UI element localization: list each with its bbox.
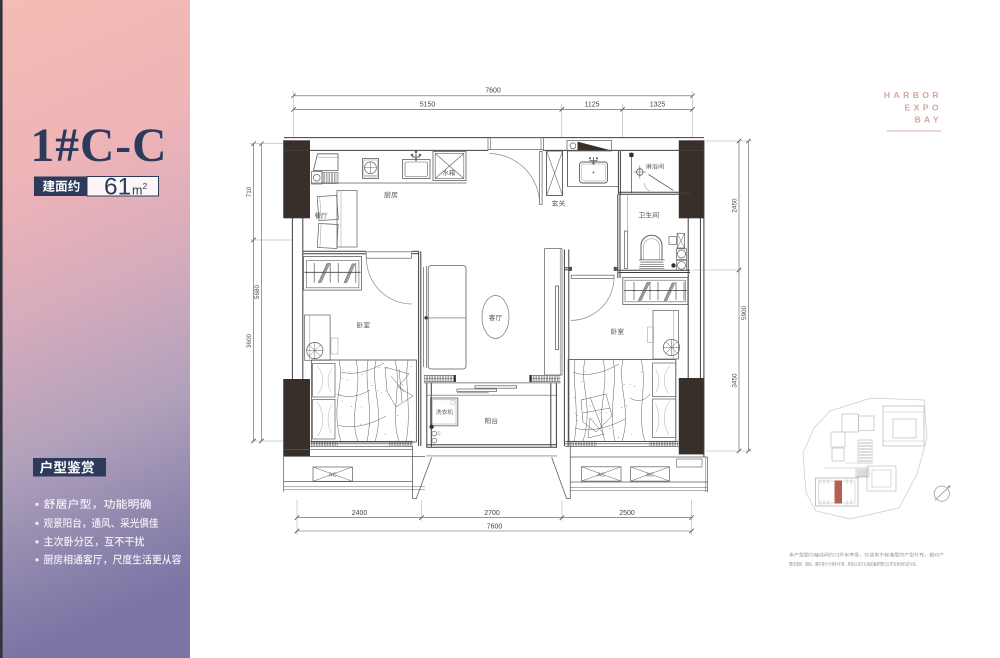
svg-text:5900: 5900 xyxy=(741,305,748,320)
svg-text:2450: 2450 xyxy=(731,198,738,213)
svg-text:710: 710 xyxy=(246,186,253,197)
svg-text:AC: AC xyxy=(597,472,605,478)
svg-text:1#C-C: 1#C-C xyxy=(31,120,168,172)
svg-text:7600: 7600 xyxy=(485,88,501,95)
svg-text:EXPO: EXPO xyxy=(905,103,942,113)
svg-text:2500: 2500 xyxy=(619,510,635,517)
svg-text:AC: AC xyxy=(646,472,654,478)
svg-text:1125: 1125 xyxy=(584,101,599,108)
svg-text:3450: 3450 xyxy=(731,373,738,388)
svg-text:3600: 3600 xyxy=(246,333,253,348)
svg-text:5680: 5680 xyxy=(254,284,261,299)
svg-text:5150: 5150 xyxy=(420,101,436,108)
svg-text:61: 61 xyxy=(104,174,131,201)
svg-text:7600: 7600 xyxy=(487,523,503,530)
svg-text:2400: 2400 xyxy=(352,510,368,517)
svg-text:2700: 2700 xyxy=(484,510,500,517)
svg-text:BAY: BAY xyxy=(914,115,942,125)
svg-text:1325: 1325 xyxy=(650,101,666,108)
svg-text:2: 2 xyxy=(143,181,148,191)
svg-text:m: m xyxy=(132,184,142,198)
svg-text:AC: AC xyxy=(329,473,337,479)
svg-text:HARBOR: HARBOR xyxy=(884,90,942,100)
